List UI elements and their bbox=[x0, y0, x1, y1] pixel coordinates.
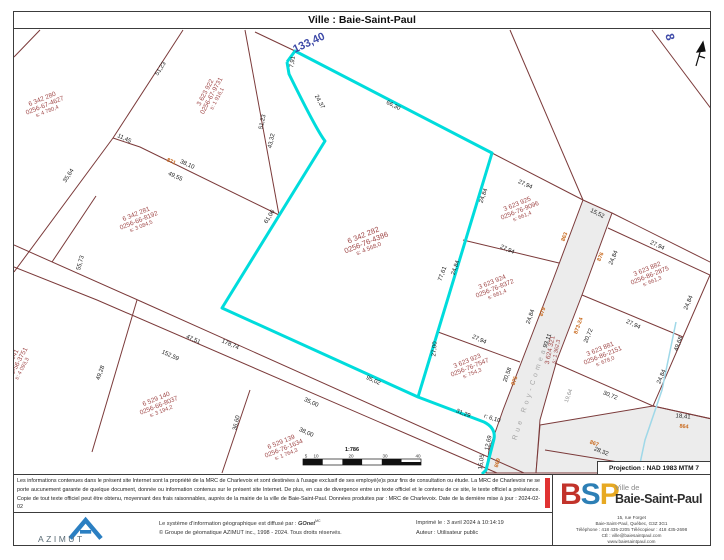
dimension-label: 20,72 bbox=[583, 328, 594, 344]
civic-number-label: 864 bbox=[679, 424, 689, 431]
bsp-ville-de: Ville de bbox=[615, 483, 639, 492]
dimension-label: 27,94 bbox=[625, 319, 641, 331]
parcel-label: 3 623 8820256-86-2875s: 661,3 bbox=[628, 259, 673, 292]
scale-tick-label: 30 bbox=[382, 454, 387, 459]
dimension-label: 24,84 bbox=[479, 188, 490, 204]
credits-line1: Le système d'information géographique es… bbox=[159, 519, 342, 529]
parcel-label: 6 342 2820256-76-4386s: 4 568,0 bbox=[340, 223, 392, 261]
dimension-label: 27,94 bbox=[649, 240, 665, 252]
parcel-label: 3 623 9220256-67-9731s: 1 916,1 bbox=[194, 74, 230, 119]
dimension-label: 24,84 bbox=[656, 369, 667, 385]
printed-date: Imprimé le : 3 avril 2024 à 10:14:19 bbox=[416, 519, 504, 529]
dimension-label: 7,91 bbox=[289, 56, 297, 69]
civic-number-label: 863 bbox=[561, 232, 570, 243]
parcel-label: 6 342 2800256-67-4627s: 4 780,4 bbox=[23, 89, 68, 122]
disclaimer-box: Les informations contenues dans le prése… bbox=[13, 474, 554, 513]
dimension-label: 38,10 bbox=[179, 159, 195, 171]
dimension-label-grey: 19,64 bbox=[564, 389, 574, 404]
dimension-label: 15,52 bbox=[589, 208, 605, 220]
dimension-label: 178,74 bbox=[220, 339, 239, 352]
bsp-address-web: www.baiesaintpaul.com bbox=[553, 539, 710, 545]
parcel-label: 3 623 9240256-76-8372s: 681,4 bbox=[473, 272, 518, 305]
dimension-label: 95,02 bbox=[365, 375, 381, 387]
print-info: Imprimé le : 3 avril 2024 à 10:14:19 Aut… bbox=[416, 519, 504, 538]
civic-number-label: 871 bbox=[166, 157, 177, 166]
gonet-brand: GOnet bbox=[298, 521, 315, 527]
dimension-label: 35,64 bbox=[62, 168, 75, 184]
parcel-label: 3 623 9230256-76-7547s: 754,3 bbox=[448, 351, 493, 384]
dimension-label: 24,84 bbox=[683, 295, 694, 311]
civic-number-label: 879 bbox=[539, 307, 548, 318]
page: { "title": "Ville : Baie-Saint-Paul", "p… bbox=[0, 0, 724, 560]
dimension-label: 11,45 bbox=[116, 133, 132, 145]
projection-label: Projection : NAD 1983 MTM 7 bbox=[609, 465, 699, 472]
cadastral-map[interactable]: 51,2311,4538,1049,5535,6455,7351,2343,32… bbox=[13, 28, 711, 475]
dimension-label: 24,84 bbox=[526, 309, 537, 325]
parcel-label: 6 529 1400256-66-8037s: 3 194,2 bbox=[137, 389, 182, 422]
lot-dimension-blue-label: 133,40 bbox=[291, 30, 327, 55]
scale-tick-label: 10 bbox=[313, 454, 318, 459]
parcel-label: 3 623 8810256-86-2151s: 678,0 bbox=[581, 339, 626, 372]
civic-number-label: 869 bbox=[494, 458, 502, 468]
lot-dimension-blue-label: 8 bbox=[662, 32, 677, 42]
parcel-label: 6 529 1390256-76-1634s: 1 764,3 bbox=[262, 432, 307, 465]
parcel-label: 6 529 1410256-56-3751s: 4 093,3 bbox=[13, 344, 35, 389]
dimension-label: 31,29 bbox=[455, 409, 471, 420]
map-labels-layer: 51,2311,4538,1049,5535,6455,7351,2343,32… bbox=[14, 29, 710, 474]
civic-number-label: 876 bbox=[596, 252, 605, 263]
dimension-label: 61,06 bbox=[263, 209, 276, 225]
dimension-label: 47,51 bbox=[185, 334, 201, 346]
dimension-label: 36,60 bbox=[232, 415, 241, 431]
bsp-logo-icon: BSP bbox=[560, 480, 619, 510]
dimension-label: 51,23 bbox=[259, 114, 268, 130]
civic-number-label: 873-24 bbox=[573, 317, 585, 335]
scale-tick-label: 5 bbox=[305, 454, 308, 459]
dimension-label: 55,73 bbox=[76, 255, 86, 271]
dimension-label: 24,37 bbox=[313, 94, 325, 110]
scale-tick-label: 20 bbox=[348, 454, 353, 459]
dimension-label: 43,32 bbox=[268, 133, 277, 149]
civic-number-label: 867 bbox=[589, 440, 600, 449]
dimension-label: 24,84 bbox=[451, 260, 462, 276]
dimension-label: 27,94 bbox=[517, 179, 533, 191]
bsp-address: 15, rue Forget Baie-Saint-Paul, Québec, … bbox=[553, 515, 710, 545]
azimut-wordmark: AZIMUT bbox=[38, 534, 85, 544]
credits-text: Le système d'information géographique es… bbox=[159, 519, 342, 539]
page-title: Ville : Baie-Saint-Paul bbox=[308, 14, 416, 26]
dimension-label: 49,68 bbox=[674, 336, 685, 352]
dimension-label: 27,94 bbox=[471, 334, 487, 346]
dimension-label: 51,23 bbox=[154, 61, 167, 77]
credits-line2: © Groupe de géomatique AZIMUT inc., 1998… bbox=[159, 529, 342, 539]
dimension-label: 27,94 bbox=[499, 244, 515, 256]
parcel-label: 6 342 2810256-66-8192s: 3 084,5 bbox=[117, 204, 162, 237]
parcel-label: 3 623 9250256-76-9096s: 661,4 bbox=[498, 194, 543, 227]
dimension-label: 49,28 bbox=[96, 365, 107, 381]
print-author: Auteur : Utilisateur public bbox=[416, 529, 504, 539]
city-logo-box: BSP Ville de Baie-Saint-Paul 15, rue For… bbox=[552, 474, 711, 546]
scale-ratio-label: 1:786 bbox=[345, 447, 359, 453]
dimension-label: 18,41 bbox=[675, 413, 690, 420]
dimension-label: 35,00 bbox=[303, 397, 319, 409]
disclaimer-red-bar bbox=[545, 478, 550, 508]
dimension-label: 30,72 bbox=[602, 390, 618, 401]
dimension-label: 15,05 bbox=[478, 454, 486, 470]
dimension-label: 28,32 bbox=[593, 446, 609, 457]
map-title-bar: Ville : Baie-Saint-Paul bbox=[13, 11, 711, 29]
dimension-label: 24,84 bbox=[608, 250, 619, 266]
civic-number-label: 875 bbox=[511, 376, 520, 387]
dimension-label: 49,55 bbox=[167, 171, 183, 183]
dimension-label: 27,00 bbox=[431, 341, 438, 356]
credits-box: AZIMUT Le système d'information géograph… bbox=[13, 512, 554, 546]
scale-tick-label: 40 bbox=[415, 454, 420, 459]
bsp-city-name: Baie-Saint-Paul bbox=[615, 492, 702, 506]
disclaimer-text: Les informations contenues dans le prése… bbox=[17, 477, 540, 512]
dimension-label: 12,69 bbox=[485, 435, 494, 451]
dimension-label: r: 6,10 bbox=[483, 414, 501, 425]
dimension-label: 66,30 bbox=[385, 100, 401, 112]
dimension-label: 77,61 bbox=[438, 266, 449, 282]
dimension-label: 152,59 bbox=[160, 350, 179, 363]
projection-box: Projection : NAD 1983 MTM 7 bbox=[597, 461, 711, 475]
road-name-label: Rue Roy-Comeau bbox=[511, 339, 550, 441]
